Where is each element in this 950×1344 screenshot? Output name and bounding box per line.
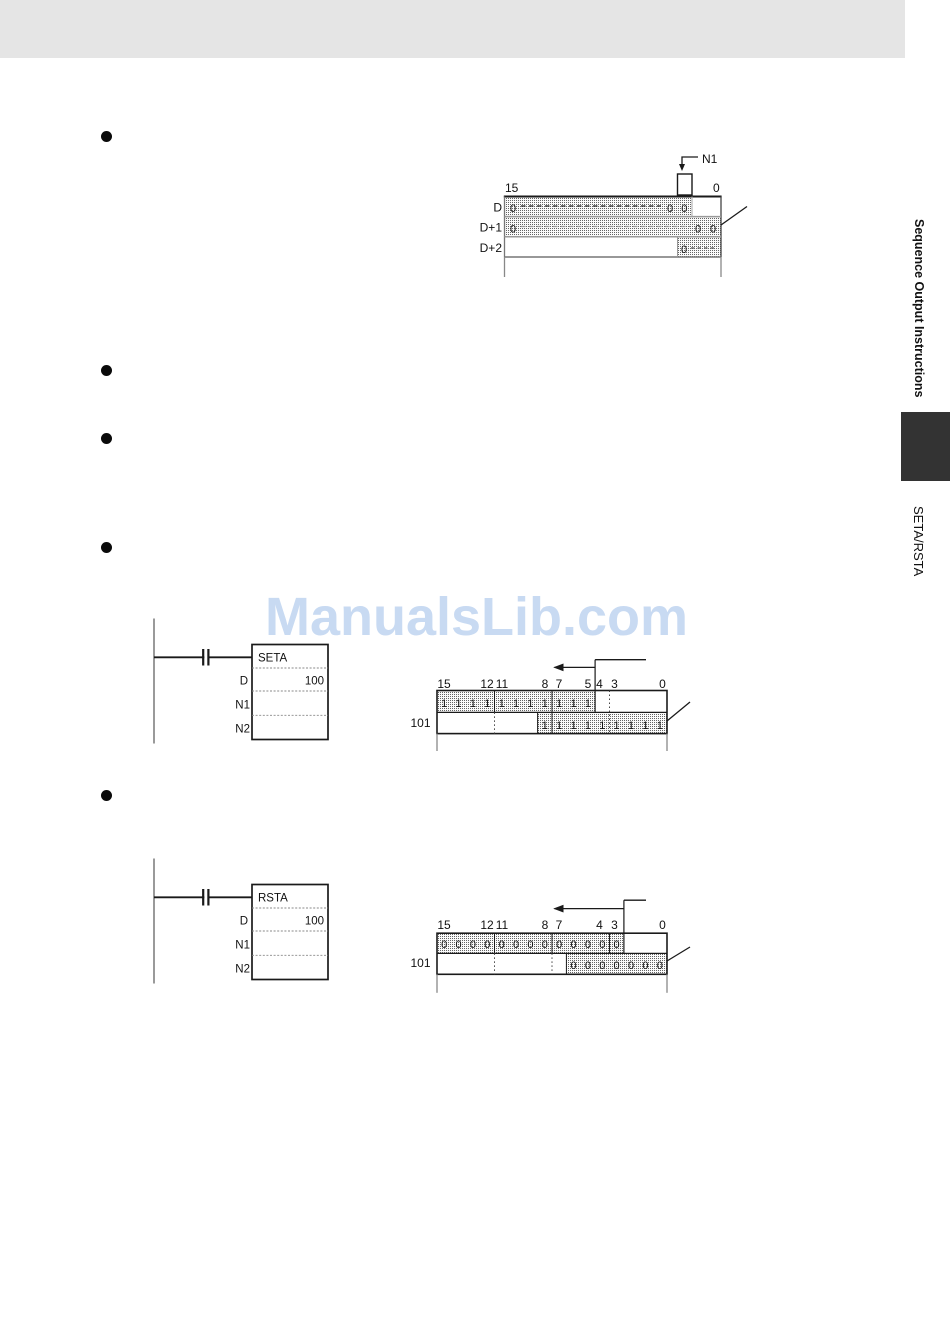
svg-text:15: 15 xyxy=(437,918,451,932)
svg-text:0: 0 xyxy=(470,939,476,951)
svg-text:100: 100 xyxy=(305,676,324,688)
svg-text:1: 1 xyxy=(599,720,605,732)
svg-text:1: 1 xyxy=(542,698,548,710)
svg-text:0: 0 xyxy=(441,939,447,951)
svg-text:0: 0 xyxy=(456,939,462,951)
svg-text:1: 1 xyxy=(556,720,562,732)
svg-text:0: 0 xyxy=(484,939,490,951)
svg-text:1: 1 xyxy=(456,698,462,710)
svg-text:11: 11 xyxy=(496,918,509,932)
svg-text:1: 1 xyxy=(527,698,533,710)
svg-text:11: 11 xyxy=(496,677,509,691)
svg-text:8: 8 xyxy=(542,677,549,691)
svg-text:0: 0 xyxy=(499,939,505,951)
svg-text:3: 3 xyxy=(611,677,618,691)
svg-text:1: 1 xyxy=(628,720,634,732)
svg-text:101: 101 xyxy=(410,956,430,970)
svg-text:100: 100 xyxy=(305,916,324,928)
svg-text:RSTA: RSTA xyxy=(258,893,288,905)
svg-text:0: 0 xyxy=(667,203,673,215)
svg-text:0: 0 xyxy=(599,939,605,951)
svg-text:0: 0 xyxy=(614,939,620,951)
svg-text:0: 0 xyxy=(628,960,634,972)
svg-text:1: 1 xyxy=(484,698,490,710)
svg-text:N1: N1 xyxy=(702,152,718,166)
svg-text:1: 1 xyxy=(614,720,620,732)
svg-text:1: 1 xyxy=(556,698,562,710)
svg-text:N2: N2 xyxy=(235,964,250,976)
svg-text:1: 1 xyxy=(570,698,576,710)
svg-text:1: 1 xyxy=(542,720,548,732)
svg-text:0: 0 xyxy=(659,677,666,691)
svg-text:0: 0 xyxy=(542,939,548,951)
svg-text:1: 1 xyxy=(642,720,648,732)
svg-text:0: 0 xyxy=(556,939,562,951)
svg-text:0: 0 xyxy=(713,181,720,195)
svg-text:8: 8 xyxy=(542,918,549,932)
svg-text:0: 0 xyxy=(513,939,519,951)
svg-text:D: D xyxy=(240,676,248,688)
svg-text:0: 0 xyxy=(657,960,663,972)
svg-text:0: 0 xyxy=(659,918,666,932)
svg-text:4: 4 xyxy=(596,677,603,691)
svg-text:15: 15 xyxy=(437,677,451,691)
svg-text:N2: N2 xyxy=(235,724,250,736)
svg-text:0: 0 xyxy=(527,939,533,951)
svg-text:15: 15 xyxy=(505,181,519,195)
svg-text:0: 0 xyxy=(510,224,516,236)
svg-text:1: 1 xyxy=(513,698,519,710)
svg-text:1: 1 xyxy=(441,698,447,710)
svg-text:0: 0 xyxy=(570,960,576,972)
svg-text:0: 0 xyxy=(681,244,687,256)
svg-text:1: 1 xyxy=(585,698,591,710)
svg-text:0: 0 xyxy=(642,960,648,972)
svg-text:101: 101 xyxy=(410,716,430,730)
svg-text:0: 0 xyxy=(585,960,591,972)
svg-text:1: 1 xyxy=(499,698,505,710)
svg-text:N1: N1 xyxy=(235,700,250,712)
svg-text:0: 0 xyxy=(614,960,620,972)
svg-text:3: 3 xyxy=(611,918,618,932)
svg-text:0: 0 xyxy=(681,203,687,215)
svg-text:0: 0 xyxy=(585,939,591,951)
svg-text:D: D xyxy=(240,916,248,928)
svg-text:D+1: D+1 xyxy=(480,221,503,235)
svg-text:7: 7 xyxy=(556,918,563,932)
svg-text:1: 1 xyxy=(585,720,591,732)
svg-text:SETA: SETA xyxy=(258,653,288,665)
svg-text:0: 0 xyxy=(695,224,701,236)
svg-text:0: 0 xyxy=(570,939,576,951)
svg-text:4: 4 xyxy=(596,918,603,932)
svg-text:D: D xyxy=(493,201,502,215)
svg-text:1: 1 xyxy=(570,720,576,732)
svg-text:7: 7 xyxy=(556,677,563,691)
svg-text:N1: N1 xyxy=(235,940,250,952)
svg-text:D+2: D+2 xyxy=(480,241,503,255)
svg-text:0: 0 xyxy=(599,960,605,972)
svg-text:0: 0 xyxy=(710,224,716,236)
svg-text:0: 0 xyxy=(510,203,516,215)
svg-text:12: 12 xyxy=(480,677,494,691)
svg-text:1: 1 xyxy=(657,720,663,732)
svg-text:5: 5 xyxy=(585,677,592,691)
svg-text:12: 12 xyxy=(480,918,494,932)
svg-text:1: 1 xyxy=(470,698,476,710)
